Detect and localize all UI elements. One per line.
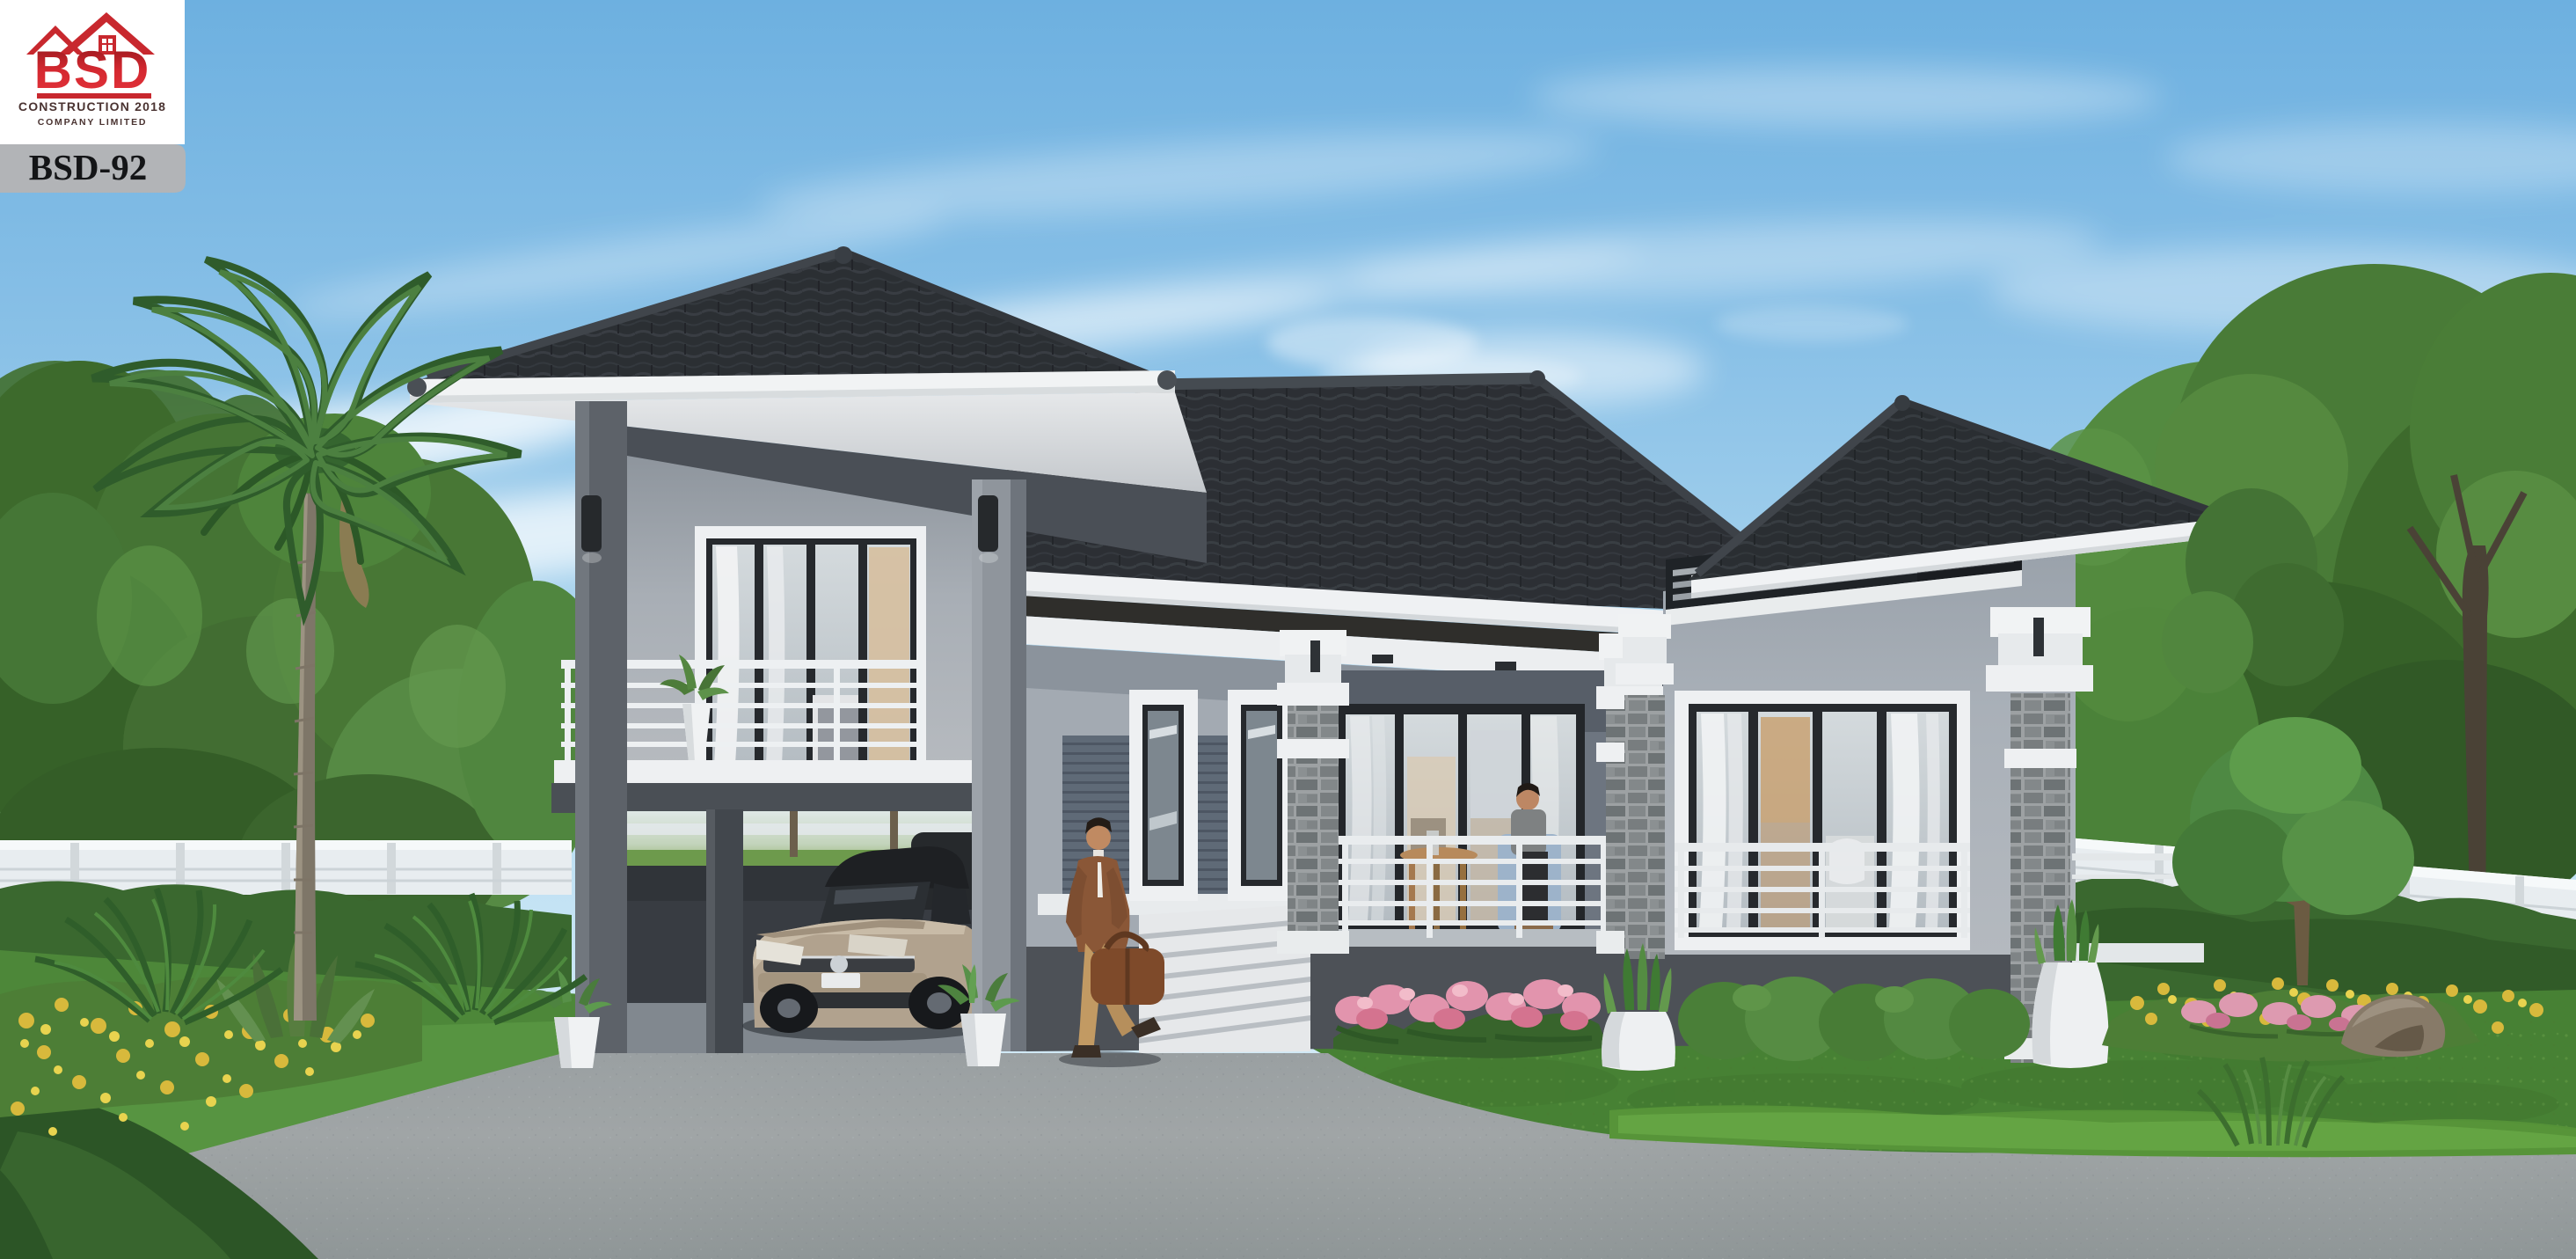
svg-text:CONSTRUCTION 2018: CONSTRUCTION 2018 [18,99,166,113]
svg-text:BSD-92: BSD-92 [29,147,147,187]
svg-text:BSD: BSD [34,40,151,99]
svg-text:COMPANY LIMITED: COMPANY LIMITED [38,117,148,128]
